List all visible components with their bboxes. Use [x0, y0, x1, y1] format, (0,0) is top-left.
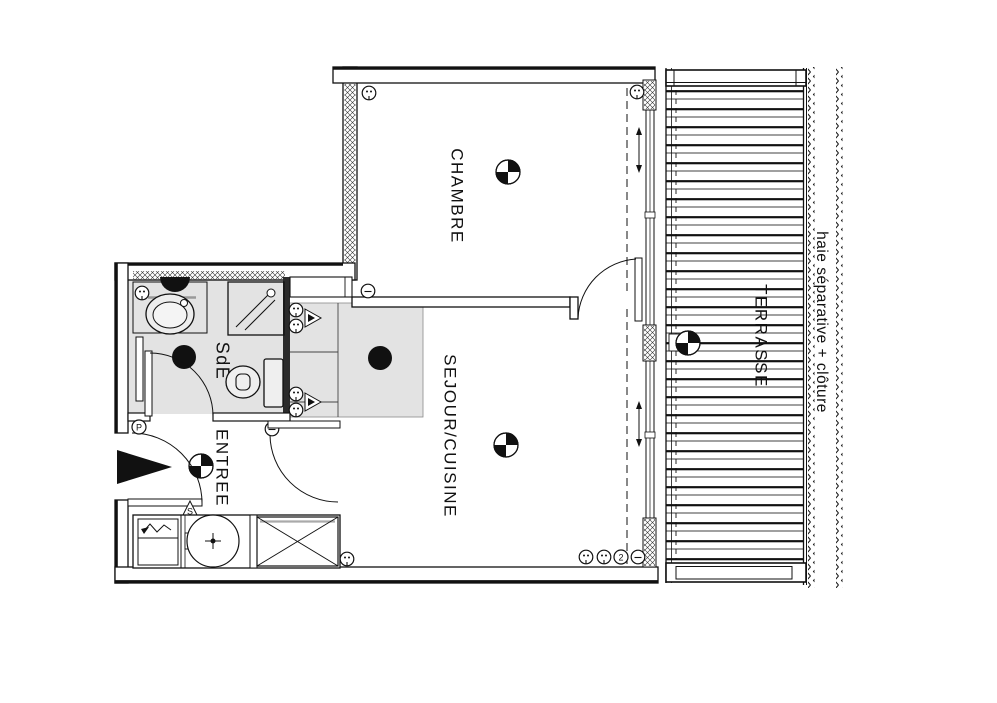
chambre-door — [578, 258, 642, 321]
chambre-label: CHAMBRE — [448, 148, 467, 244]
hedge-fence: haie séparative + clôture — [808, 67, 843, 588]
outlet-icon — [597, 550, 611, 564]
appliance-space-icon — [257, 517, 338, 566]
ceiling-light-icon — [172, 345, 196, 369]
survey-marker-icon — [496, 160, 520, 184]
outlet-icon — [579, 550, 593, 564]
outlet-icon — [630, 85, 644, 99]
tv-outlet-icon: 2 — [614, 550, 628, 564]
insulated-wall-hatch — [345, 84, 356, 266]
outlet-icon — [362, 86, 376, 100]
floor-plan-page: TERRASSE haie séparative + clôture — [0, 0, 997, 703]
room-chambre: CHAMBRE — [362, 85, 644, 321]
kitchen-counter — [133, 515, 354, 568]
switch-icon — [361, 284, 375, 298]
hedge-label: haie séparative + clôture — [813, 231, 830, 413]
terrace: TERRASSE — [666, 68, 807, 585]
slide-direction-arrow-icon — [636, 401, 642, 447]
terrace-bottom-band — [666, 563, 806, 582]
entrance-arrow-icon — [117, 450, 172, 484]
media-outlet-row: 2 — [579, 550, 645, 564]
interior-door — [268, 421, 340, 502]
switch-icon — [631, 550, 645, 564]
switch-p-icon: P — [132, 420, 146, 434]
slide-direction-arrow-icon — [636, 127, 642, 173]
svg-text:P: P — [136, 423, 142, 433]
outlet-icon — [340, 552, 354, 566]
sejour-cuisine-label: SEJOUR/CUISINE — [441, 354, 460, 518]
terrace-decking — [666, 86, 804, 563]
survey-marker-icon — [189, 454, 213, 478]
room-entree: ENTREE S P — [117, 420, 340, 517]
radiator — [136, 337, 143, 401]
entree-label: ENTREE — [213, 429, 232, 507]
survey-marker-icon — [494, 433, 518, 457]
floor-plan-drawing: TERRASSE haie séparative + clôture — [0, 0, 997, 703]
survey-marker-icon — [676, 331, 700, 355]
outlet-icon — [135, 286, 149, 300]
terrace-top-band — [666, 70, 806, 86]
ceiling-light-icon — [368, 346, 392, 370]
hedge-zigzag-right — [836, 67, 843, 588]
terrasse-label: TERRASSE — [752, 284, 771, 388]
svg-text:2: 2 — [618, 553, 623, 563]
